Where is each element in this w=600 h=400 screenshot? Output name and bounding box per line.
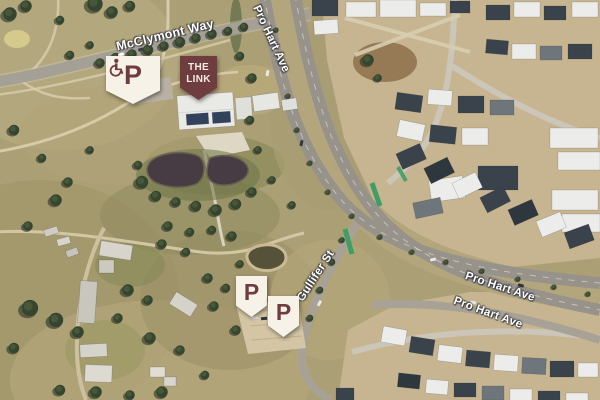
wheelchair-icon <box>106 58 125 77</box>
parking-letter: P <box>244 281 259 304</box>
parking-marker-1[interactable]: P <box>236 276 267 317</box>
parking-letter: P <box>124 62 142 89</box>
accessible-parking-marker[interactable]: P <box>106 56 160 104</box>
the-link-label-line1: THE <box>188 62 209 74</box>
parking-marker-2[interactable]: P <box>268 296 299 337</box>
the-link-marker[interactable]: THE LINK <box>180 56 217 100</box>
the-link-label-line2: LINK <box>186 74 211 86</box>
parking-letter: P <box>276 301 291 324</box>
satellite-imagery <box>0 0 600 400</box>
map-canvas[interactable]: McClymont Way Pro Hart Ave Gullifer St P… <box>0 0 600 400</box>
